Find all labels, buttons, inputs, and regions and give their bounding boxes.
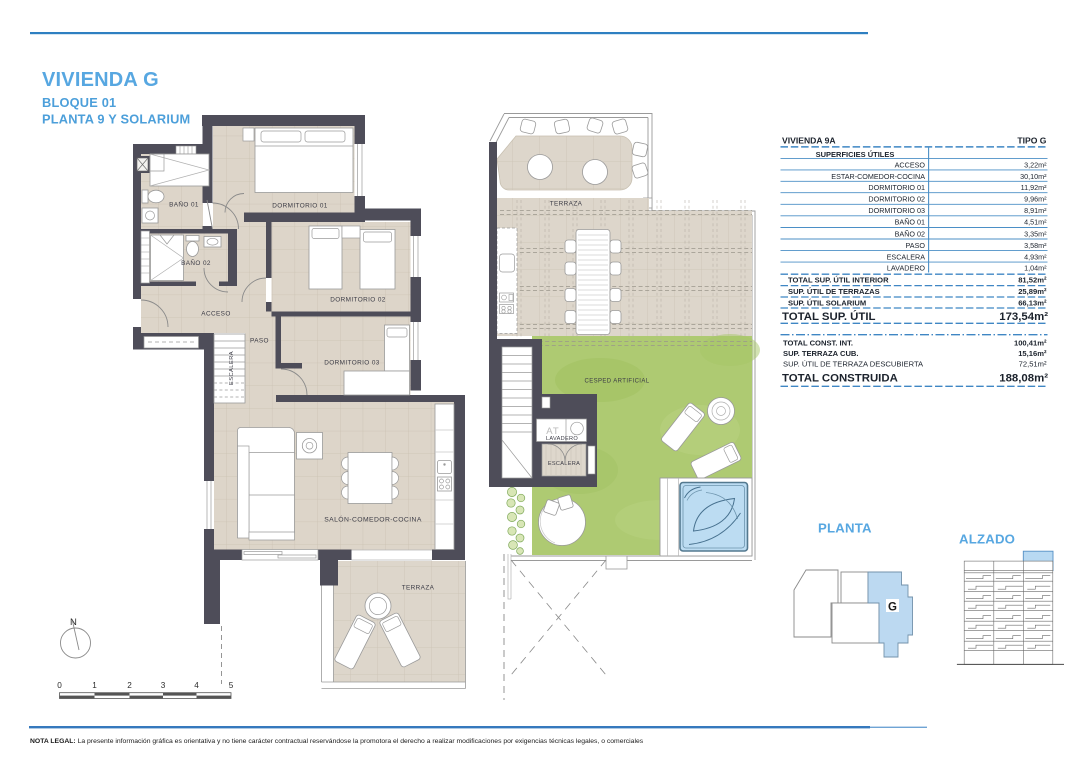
svg-text:0: 0: [57, 681, 62, 690]
svg-text:25,89m²: 25,89m²: [1018, 287, 1047, 296]
svg-text:BAÑO 01: BAÑO 01: [895, 218, 925, 227]
svg-text:4,93m²: 4,93m²: [1024, 252, 1047, 261]
svg-text:ESCALERA: ESCALERA: [548, 461, 580, 467]
svg-text:SUP. TERRAZA CUB.: SUP. TERRAZA CUB.: [783, 349, 859, 358]
svg-text:81,52m²: 81,52m²: [1018, 275, 1047, 284]
svg-text:4,51m²: 4,51m²: [1024, 218, 1047, 227]
svg-text:DORMITORIO 01: DORMITORIO 01: [868, 183, 925, 192]
svg-text:72,51m²: 72,51m²: [1019, 360, 1047, 369]
svg-text:1,04m²: 1,04m²: [1024, 263, 1047, 272]
svg-text:SUPERFICIES ÚTILES: SUPERFICIES ÚTILES: [816, 150, 895, 159]
svg-text:9,96m²: 9,96m²: [1024, 195, 1047, 204]
svg-text:DORMITORIO 02: DORMITORIO 02: [868, 195, 925, 204]
svg-text:SUP. ÚTIL DE TERRAZAS: SUP. ÚTIL DE TERRAZAS: [788, 287, 880, 296]
svg-text:173,54m²: 173,54m²: [999, 311, 1048, 323]
svg-text:3: 3: [161, 681, 166, 690]
svg-text:TOTAL SUP. ÚTIL INTERIOR: TOTAL SUP. ÚTIL INTERIOR: [788, 275, 889, 284]
svg-text:5: 5: [229, 681, 234, 690]
svg-text:G: G: [888, 602, 897, 614]
svg-text:SUP. ÚTIL SOLARIUM: SUP. ÚTIL SOLARIUM: [788, 298, 866, 307]
svg-text:30,10m²: 30,10m²: [1020, 172, 1047, 181]
svg-text:3,22m²: 3,22m²: [1024, 160, 1047, 169]
svg-text:TERRAZA: TERRAZA: [550, 201, 583, 208]
svg-text:TERRAZA: TERRAZA: [402, 585, 435, 592]
svg-text:TOTAL SUP. ÚTIL: TOTAL SUP. ÚTIL: [782, 310, 875, 323]
svg-text:ESCALERA: ESCALERA: [887, 252, 926, 261]
svg-text:4: 4: [194, 681, 199, 690]
svg-text:BAÑO 01: BAÑO 01: [169, 200, 199, 209]
svg-text:ACCESO: ACCESO: [201, 311, 230, 318]
svg-text:15,16m²: 15,16m²: [1018, 349, 1047, 358]
svg-text:PASO: PASO: [250, 338, 269, 345]
svg-text:LAVADERO: LAVADERO: [887, 263, 925, 272]
svg-text:PASO: PASO: [906, 241, 926, 250]
svg-text:SALÓN-COMEDOR-COCINA: SALÓN-COMEDOR-COCINA: [324, 515, 422, 524]
svg-text:DORMITORIO 03: DORMITORIO 03: [324, 360, 380, 367]
svg-text:66,13m²: 66,13m²: [1018, 298, 1047, 307]
svg-text:BLOQUE 01: BLOQUE 01: [42, 95, 116, 110]
svg-text:VIVIENDA 9A: VIVIENDA 9A: [782, 136, 836, 146]
svg-text:1: 1: [92, 681, 97, 690]
svg-text:100,41m²: 100,41m²: [1014, 339, 1047, 348]
svg-text:LAVADERO: LAVADERO: [546, 436, 578, 442]
svg-text:SUP. ÚTIL DE TERRAZA DESCUBIER: SUP. ÚTIL DE TERRAZA DESCUBIERTA: [783, 360, 924, 369]
svg-text:N: N: [70, 617, 77, 628]
svg-text:ACCESO: ACCESO: [895, 160, 926, 169]
svg-text:BAÑO 02: BAÑO 02: [895, 229, 925, 238]
svg-text:2: 2: [127, 681, 132, 690]
svg-text:ESCALERA: ESCALERA: [229, 351, 235, 385]
svg-text:TOTAL CONST. INT.: TOTAL CONST. INT.: [783, 339, 853, 348]
svg-text:ESTAR-COMEDOR-COCINA: ESTAR-COMEDOR-COCINA: [831, 172, 925, 181]
svg-text:DORMITORIO 01: DORMITORIO 01: [272, 203, 328, 210]
svg-text:PLANTA 9 Y SOLARIUM: PLANTA 9 Y SOLARIUM: [42, 112, 190, 127]
svg-text:TIPO G: TIPO G: [1017, 136, 1046, 146]
svg-text:BAÑO 02: BAÑO 02: [181, 258, 211, 267]
svg-text:188,08m²: 188,08m²: [999, 372, 1048, 384]
svg-text:3,35m²: 3,35m²: [1024, 229, 1047, 238]
svg-text:8,91m²: 8,91m²: [1024, 206, 1047, 215]
svg-text:DORMITORIO 02: DORMITORIO 02: [330, 297, 386, 304]
svg-text:NOTA LEGAL: La presente inform: NOTA LEGAL: La presente información gráf…: [30, 738, 644, 745]
svg-text:VIVIENDA G: VIVIENDA G: [42, 69, 159, 91]
svg-text:3,58m²: 3,58m²: [1024, 241, 1047, 250]
svg-text:PLANTA: PLANTA: [818, 521, 872, 536]
svg-text:DORMITORIO 03: DORMITORIO 03: [868, 206, 925, 215]
svg-text:11,92m²: 11,92m²: [1021, 183, 1047, 192]
svg-text:ALZADO: ALZADO: [959, 532, 1015, 547]
svg-text:TOTAL CONSTRUIDA: TOTAL CONSTRUIDA: [782, 372, 898, 384]
svg-text:CESPED ARTIFICIAL: CESPED ARTIFICIAL: [584, 379, 649, 385]
